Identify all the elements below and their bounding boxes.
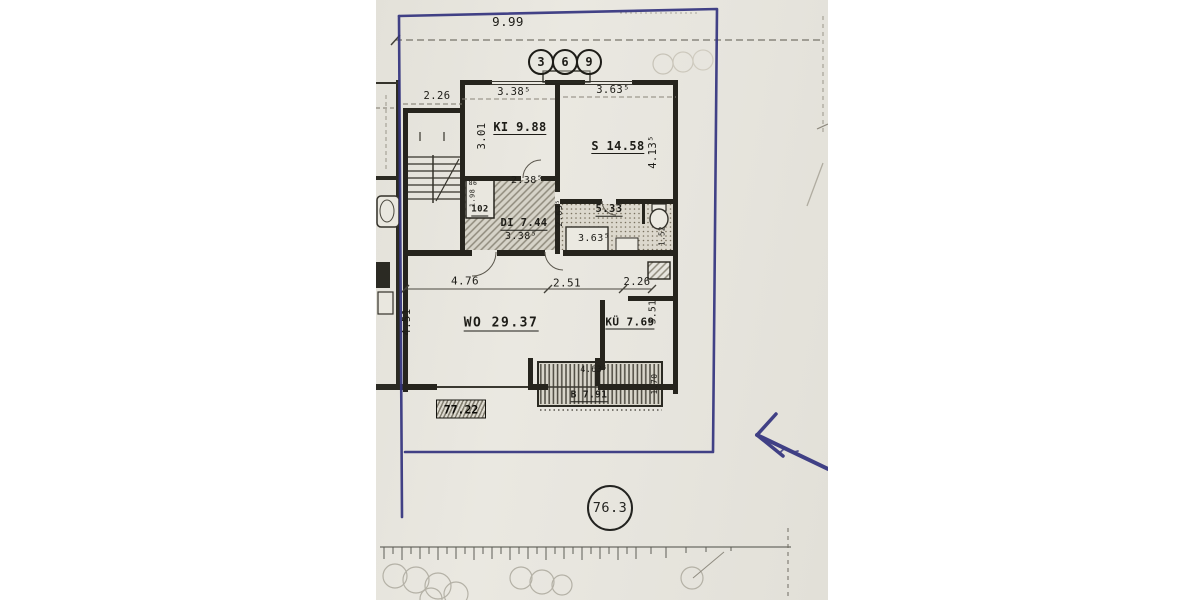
- dim-kitchen-height: 3.51: [648, 300, 658, 324]
- dim-overall-width: 9.99: [492, 16, 524, 29]
- room-label-s: S 14.58: [591, 140, 644, 154]
- dim-wc-width: 1.52: [658, 226, 666, 246]
- dim-hall-width: 3.38⁵: [505, 232, 537, 242]
- tree-symbols: [383, 564, 703, 600]
- axis-marker-3-label: 3: [537, 55, 544, 69]
- total-area-badge: 77.22: [436, 400, 486, 419]
- room-label-bath: 5.33: [596, 204, 623, 217]
- scan-scratch: [807, 163, 823, 206]
- site-marker-circle: 76.3: [587, 485, 633, 531]
- room-label-closet: 102: [471, 206, 488, 217]
- sink-icon: [616, 238, 638, 252]
- site-marker-value: 76.3: [593, 500, 628, 516]
- axis-marker-9: 9: [576, 49, 602, 75]
- total-area-value: 77.22: [444, 402, 479, 416]
- dim-balcony-width: 4.63⁵: [580, 366, 608, 375]
- room-label-ki: KI 9.88: [493, 121, 546, 135]
- dim-balcony-depth: 1.70: [651, 374, 659, 395]
- stairs-icon: [408, 155, 460, 203]
- room-label-wo: WO 29.37: [464, 317, 539, 332]
- dim-bath-width: 3.63⁵: [578, 234, 610, 244]
- axis-marker-3: 3: [528, 49, 554, 75]
- dim-wo-height: 4.51: [402, 309, 413, 336]
- dim-wo-seg1: 4.76: [451, 276, 479, 287]
- dim-wo-seg2: 2.51: [553, 278, 581, 289]
- room-label-balcony: B 7.91: [571, 390, 608, 402]
- dim-hall-top: 2.38⁵: [511, 176, 543, 186]
- paper-photo: 9.99 3 6 9 2.26 3.38⁵ 3.01 KI 9.88 3.63⁵…: [376, 0, 828, 600]
- room-label-hall: DI 7.44: [500, 218, 547, 231]
- axis-marker-6: 6: [552, 49, 578, 75]
- dim-ki-height: 3.01: [477, 123, 488, 150]
- axis-marker-6-label: 6: [561, 55, 568, 69]
- pen-arrow-icon: [757, 414, 828, 469]
- dim-s-width: 3.63⁵: [596, 85, 630, 96]
- dim-closet-top: 86: [469, 180, 478, 187]
- duct-shaft: [648, 262, 670, 279]
- dim-ki-width: 3.38⁵: [497, 87, 531, 98]
- neighbour-bathtub-icon: [377, 196, 399, 227]
- dim-hall-height: 2.63⁵: [556, 199, 565, 227]
- dim-s-height: 4.13⁵: [648, 135, 659, 169]
- hedge-and-trees: [380, 528, 791, 600]
- dim-wo-seg3: 2.26: [624, 277, 651, 288]
- scanned-floorplan-photo: 9.99 3 6 9 2.26 3.38⁵ 3.01 KI 9.88 3.63⁵…: [0, 0, 1200, 600]
- dim-stairwell: 2.26: [424, 91, 451, 102]
- axis-marker-9-label: 9: [585, 55, 592, 69]
